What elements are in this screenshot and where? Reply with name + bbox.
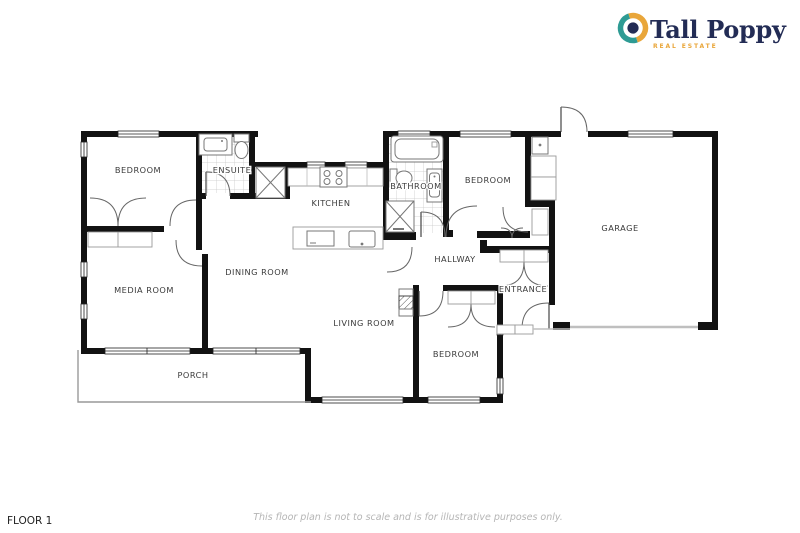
floor-plan-page: Tall Poppy REAL ESTATE <box>0 0 800 533</box>
laundry-tub <box>532 137 548 154</box>
window <box>428 397 480 403</box>
door-garage-entry <box>561 107 587 132</box>
room-label-dining-room: DINING ROOM <box>225 267 288 277</box>
disclaimer-text: This floor plan is not to scale and is f… <box>253 512 563 523</box>
room-label-living-room: LIVING ROOM <box>333 318 394 328</box>
floor-plan-svg: Tall Poppy REAL ESTATE <box>0 0 800 533</box>
bedroom-3-wardrobe <box>448 291 495 304</box>
room-label-bedroom-1: BEDROOM <box>115 165 161 175</box>
room-label-hallway: HALLWAY <box>434 254 476 264</box>
linen-closet <box>256 167 285 198</box>
wardrobe-doors-entrance <box>500 262 548 286</box>
brand-tagline: REAL ESTATE <box>653 43 718 50</box>
window <box>345 162 367 168</box>
room-label-bedroom-2: BEDROOM <box>465 175 511 185</box>
room-label-bathroom: BATHROOM <box>390 181 441 191</box>
hall-closet-shelf <box>532 209 548 235</box>
window <box>81 304 87 319</box>
ensuite-toilet <box>234 134 249 159</box>
wardrobe-doors-bedroom-3 <box>448 304 495 327</box>
brand-logo: Tall Poppy REAL ESTATE <box>617 12 787 50</box>
door-bedroom-1 <box>170 200 196 226</box>
window <box>497 378 503 394</box>
window <box>628 131 673 137</box>
room-labels: BEDROOM ENSUITE KITCHEN BATHROOM BEDROOM… <box>114 165 639 380</box>
floor-indicator: FLOOR 1 <box>7 515 52 527</box>
window <box>213 348 300 354</box>
window <box>460 131 511 137</box>
room-label-garage: GARAGE <box>601 223 638 233</box>
bedroom-1-wardrobe <box>88 232 152 247</box>
shower <box>386 201 414 232</box>
room-label-porch: PORCH <box>177 370 208 380</box>
entrance-wardrobe <box>500 250 548 262</box>
room-label-entrance: ENTRANCE <box>499 284 547 294</box>
room-label-kitchen: KITCHEN <box>312 198 351 208</box>
door-bedroom-3 <box>419 291 443 316</box>
logo-poppy-icon <box>617 12 649 44</box>
bathtub <box>391 136 443 162</box>
room-label-media-room: MEDIA ROOM <box>114 285 174 295</box>
door-hallway-living <box>387 247 412 272</box>
wardrobe-doors-bedroom-1 <box>90 198 146 226</box>
window <box>322 397 403 403</box>
room-label-bedroom-3: BEDROOM <box>433 349 479 359</box>
doors-layer <box>90 107 587 329</box>
window <box>105 348 190 354</box>
kitchen-island <box>293 227 383 249</box>
window <box>81 262 87 277</box>
footer: FLOOR 1 This floor plan is not to scale … <box>7 512 563 527</box>
window <box>81 142 87 157</box>
laundry-cabinets <box>531 156 556 200</box>
door-hall-closet <box>503 207 528 232</box>
brand-name: Tall Poppy <box>650 15 787 44</box>
stove <box>320 167 347 187</box>
fireplace <box>399 289 413 316</box>
room-label-ensuite: ENSUITE <box>213 165 252 175</box>
ensuite-sink <box>199 134 232 155</box>
window <box>118 131 159 137</box>
